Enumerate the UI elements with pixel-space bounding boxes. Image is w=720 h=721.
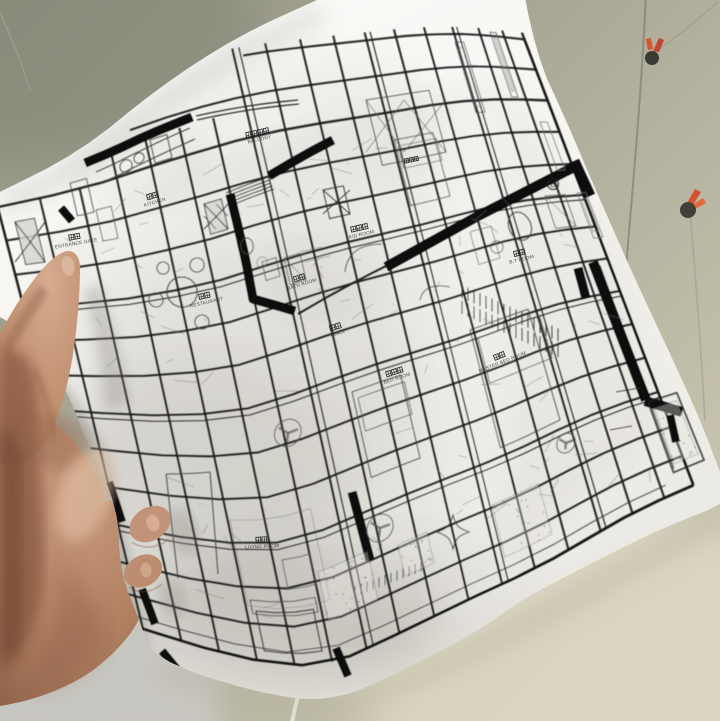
svg-text:B: B [550,180,555,189]
